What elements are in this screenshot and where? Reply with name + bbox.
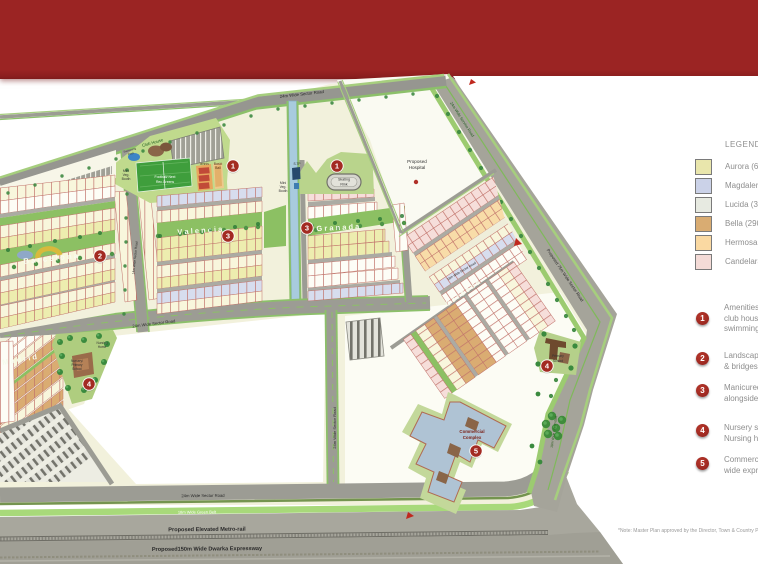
svg-text:Proposed150m Wide Dwarka Expre: Proposed150m Wide Dwarka Expressway xyxy=(152,546,263,553)
svg-text:Complex: Complex xyxy=(463,435,482,440)
svg-text:Proposed Elevated Metro-rail: Proposed Elevated Metro-rail xyxy=(168,527,246,534)
svg-text:3: 3 xyxy=(226,232,230,241)
svg-text:Commercial: Commercial xyxy=(459,429,484,434)
svg-text:Football/ Next: Football/ Next xyxy=(155,175,176,179)
svg-text:Booth: Booth xyxy=(122,177,131,181)
svg-text:Primary: Primary xyxy=(552,354,564,358)
svg-text:S.TP: S.TP xyxy=(293,162,300,166)
svg-text:Rink: Rink xyxy=(340,183,347,187)
svg-text:1: 1 xyxy=(335,162,339,171)
svg-text:Hospital: Hospital xyxy=(409,165,426,170)
svg-text:Home: Home xyxy=(98,345,107,349)
svg-text:18m Wide Green Belt: 18m Wide Green Belt xyxy=(178,509,217,514)
svg-text:Skating: Skating xyxy=(338,178,350,182)
svg-text:School: School xyxy=(553,359,564,363)
svg-text:Booth: Booth xyxy=(279,189,288,193)
svg-text:24m Wide Sector Road: 24m Wide Sector Road xyxy=(181,493,225,498)
svg-text:3: 3 xyxy=(305,224,309,233)
svg-text:Proposed: Proposed xyxy=(407,159,427,164)
svg-text:24m Wide Sector Road: 24m Wide Sector Road xyxy=(332,407,337,448)
svg-text:Ball: Ball xyxy=(215,166,221,170)
svg-text:2: 2 xyxy=(98,252,102,261)
svg-text:Rec.Greens: Rec.Greens xyxy=(156,180,174,184)
svg-text:5: 5 xyxy=(474,447,478,456)
svg-text:Tennis: Tennis xyxy=(199,162,209,166)
svg-text:1: 1 xyxy=(231,162,235,171)
svg-text:School: School xyxy=(72,367,82,371)
